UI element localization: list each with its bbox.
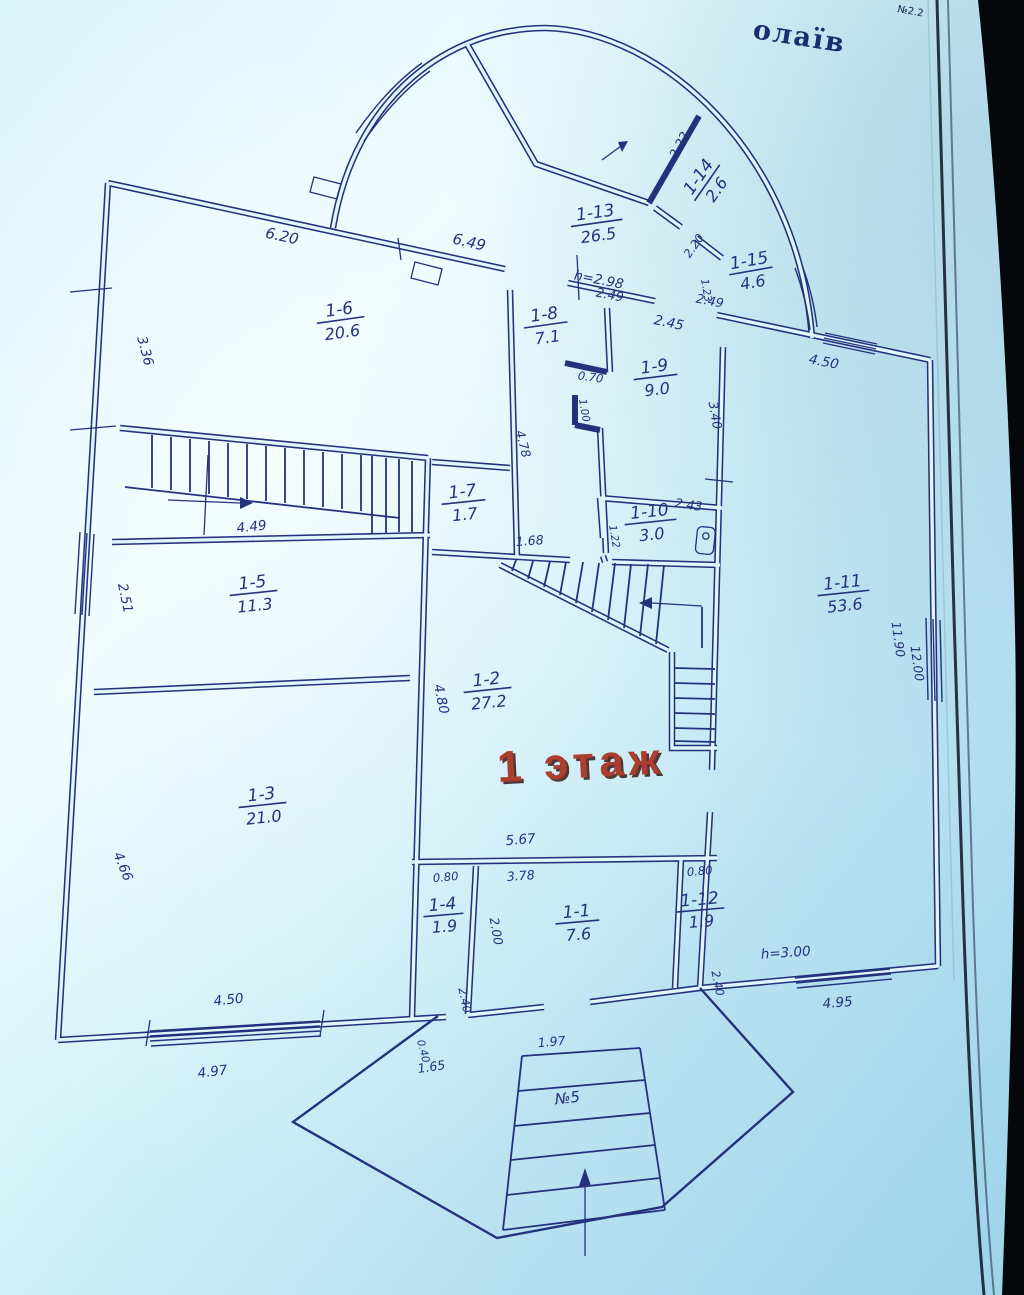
floor-caption: 1 этаж 1 этаж xyxy=(496,734,669,794)
room-area-1-5: 11.3 xyxy=(236,594,273,617)
room-area-1-4: 1.9 xyxy=(431,916,458,937)
room-area-1-1: 7.6 xyxy=(565,924,592,945)
room-area-1-2: 27.2 xyxy=(470,691,507,714)
dim-top-1-4: 0.80 xyxy=(432,869,459,885)
room-id-1-5: 1-5 xyxy=(238,572,268,595)
photo-of-floorplan-page: 1-6 20.6 1-8 7.1 1-9 9.0 1-7 1.7 1-10 3.… xyxy=(0,0,1024,1295)
entry-number-label: №5 xyxy=(553,1088,581,1109)
room-id-1-7: 1-7 xyxy=(448,481,478,504)
dim-top-1-1: 3.78 xyxy=(506,867,535,884)
dim-corridor-width: 4.49 xyxy=(236,517,268,536)
floor-caption-text: 1 этаж xyxy=(496,734,666,792)
room-id-1-2: 1-2 xyxy=(472,669,502,692)
dim-window-1-3: 4.50 xyxy=(213,990,245,1009)
floorplan-drawing: 1-6 20.6 1-8 7.1 1-9 9.0 1-7 1.7 1-10 3.… xyxy=(0,0,1024,1295)
room-id-1-4: 1-4 xyxy=(428,894,457,916)
dim-door-1-1: 1.97 xyxy=(537,1033,566,1050)
room-area-1-12: 1.9 xyxy=(688,911,715,932)
dim-opening-1-7: 1.68 xyxy=(515,532,544,549)
dim-top-1-12: 0.80 xyxy=(686,863,713,879)
room-area-1-9: 9.0 xyxy=(643,378,671,400)
room-id-1-1: 1-1 xyxy=(562,901,591,923)
room-area-1-11: 53.6 xyxy=(826,594,863,617)
room-area-1-3: 21.0 xyxy=(245,806,282,829)
room-area-1-7: 1.7 xyxy=(451,504,479,526)
dim-terrace-window: 4.95 xyxy=(822,994,853,1013)
room-id-1-3: 1-3 xyxy=(247,784,277,807)
room-area-1-10: 3.0 xyxy=(638,524,665,546)
dim-bottom-1-2: 5.67 xyxy=(505,831,537,850)
room-area-1-8: 7.1 xyxy=(534,326,562,348)
